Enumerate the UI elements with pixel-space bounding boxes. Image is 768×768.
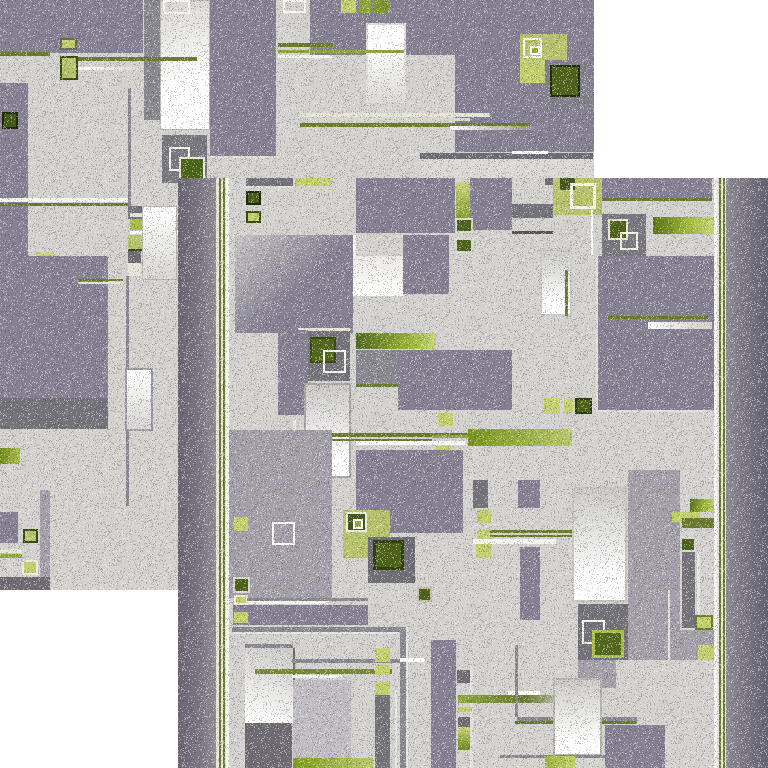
line-olive-t5 [602,198,712,201]
line-white-bl1 [247,601,330,604]
sq-green-r2 [698,645,715,660]
line-light-frame-h [232,632,405,634]
line-light-v2 [395,690,397,768]
sq-green-col1 [477,510,491,523]
col-noise-tc [210,0,276,158]
sq-green-col3 [476,543,491,558]
line-white-la [78,67,147,70]
frame-white-c15 [323,350,346,373]
border-left-pin1 [219,178,221,768]
line-white-tip [400,658,425,662]
bar-gray-top-left [246,178,293,186]
sq-green-tr2 [520,60,545,83]
line-olive-bl [0,554,22,558]
bar-gray-v2 [375,695,390,768]
bar-green-t11 [468,429,572,446]
line-olive-lg [0,203,128,206]
block-noise-t8 [598,256,716,412]
line-white-bl2 [292,675,342,678]
panel-white-tl [160,0,210,130]
line-cream-g2a [300,113,490,117]
line-olive-bl2 [255,669,392,674]
frame-white-tc [283,0,306,13]
line-olive-c15 [356,384,401,387]
sq-green-tl [246,211,261,223]
sq-green-col5 [375,665,390,675]
block-noise-top-mid2 [470,178,512,230]
bar-green-t7 [653,217,716,234]
bar-green-top-left [295,178,331,186]
block-noise-bc [431,640,456,768]
sq-green-bl1 [23,529,38,543]
rug-repeat-main [178,178,768,768]
block-noise-c2 [403,235,449,294]
line-white-c16 [356,441,466,445]
line-gray-corner [515,645,518,717]
sq-gray-bc2 [458,717,470,727]
band-white-grad [353,256,403,296]
sq-deepgreen-tr [550,65,580,97]
line-light-frame-v [406,627,408,768]
border-left-band [178,178,216,768]
rect-white-bl [245,648,293,723]
line-light-v3 [470,670,473,768]
block-cream-stack [128,263,141,276]
line-green-sa [278,50,404,53]
line-cream-g2b [310,118,470,121]
line-olive-t8 [608,316,708,319]
band-gray-ml [0,398,108,429]
band-noise-bl [233,605,368,625]
sq-darkgreen-small [417,587,432,602]
sq-green-bl3 [234,612,248,623]
bar-white-t8 [648,322,712,329]
sq-green-inner-tr [530,46,540,55]
bar-green-bottom1 [293,758,373,768]
line-olive-la [78,57,197,61]
strip-green-bc [458,727,470,750]
sq-green-top2 [359,0,371,13]
line-light-tl [246,186,293,188]
patch-noise-bl [293,680,351,758]
line-light-v4 [668,590,670,660]
line-light-tc [210,156,276,158]
border-right-band [726,178,768,768]
border-left-pin2 [223,178,225,768]
panel-white-l2 [125,368,153,431]
border-left-white [226,178,229,768]
sq-darkgreen-row [575,398,592,414]
band-noise-t5 [602,178,712,200]
line-dark-t3 [512,231,553,234]
line-olive-ml [78,279,123,281]
sq-green-r17 [592,630,624,658]
carpet-pattern-canvas [0,0,768,768]
rect-white-r17 [572,487,627,602]
bar-green-c15 [356,333,436,349]
sq-green-col6 [375,682,390,695]
bar-gray-t3 [512,204,553,218]
sq-deepgreen-tl [246,191,261,205]
sq-green-l2 [60,56,78,80]
block-noise-ml [0,256,108,398]
bar-gray-r [682,552,695,628]
block-noise-bl [227,430,332,598]
panel-white-tm [366,23,406,103]
sq-green-t13a [438,413,453,426]
block-gray-stack [128,251,141,263]
sq-green-bl1 [234,517,248,531]
sq-green-row1 [544,398,560,414]
line-white-lg [0,198,128,202]
border-right-pin1 [719,178,721,768]
block-noise-c7 [398,350,512,410]
frame-white-t6 [620,232,638,250]
bar-green-bc [458,707,472,712]
line-white-g2 [450,126,546,130]
sq-white-frame-c13 [353,519,363,529]
line-white-ptr [512,151,548,154]
bar-green-bottom2 [545,756,575,768]
bar-olive-r [682,518,714,528]
block-noise-top-mid [356,178,455,233]
band-gray-bl [0,577,50,590]
line-gray-v1 [128,88,131,206]
sq-green-bl2 [234,595,248,605]
sq-green-top3 [374,0,389,13]
line-white-v2 [591,210,593,255]
sq-darkgreen-c13 [373,540,404,570]
sq-darkgreen-tm1 [455,218,473,233]
sq-green-bl2 [22,560,38,575]
block-noise-bl [0,512,18,543]
rect-gray-c15 [356,350,401,387]
frame-white-bl [272,522,295,545]
sq-green-top1 [341,0,356,13]
sq-darkgreen-bl [233,577,250,593]
line-olive-tl [0,52,50,56]
line-olive-v-t9 [565,270,568,316]
block-noise-br [605,725,665,768]
rect-dark-bl [245,723,292,768]
block-noise-c4 [518,480,540,508]
line-white-c14 [473,539,556,544]
block-noise-r1 [628,470,680,660]
line-cream-bl [0,549,22,553]
bar-gray-c14 [473,480,488,508]
rect-white-br [553,678,602,756]
block-noise-cl [235,235,353,333]
sq-green-col4 [375,648,390,662]
sq-darkgreen-tm2 [455,238,473,253]
sq-green-row2 [564,399,573,413]
sq-green-l1 [60,38,77,50]
line-light-t8b [598,410,716,412]
line-cream-ml [78,282,123,284]
border-right-pin2 [723,178,725,768]
sq-green-speck [0,448,20,464]
sq-deepgreen-left [2,112,18,129]
strip-noise-bl [40,490,50,590]
frame-white-t4 [570,183,596,209]
block-noise-c5 [520,547,540,620]
panel-white-lc [142,206,177,280]
frame-white-tl [163,0,190,14]
line-white-sa [278,55,333,58]
panel-fill-tr [420,159,593,178]
sq-darkgreen-r [680,537,696,552]
bar-green-speck [690,499,717,512]
line-olive-sa [278,43,333,47]
sq-green-r1 [695,615,713,630]
